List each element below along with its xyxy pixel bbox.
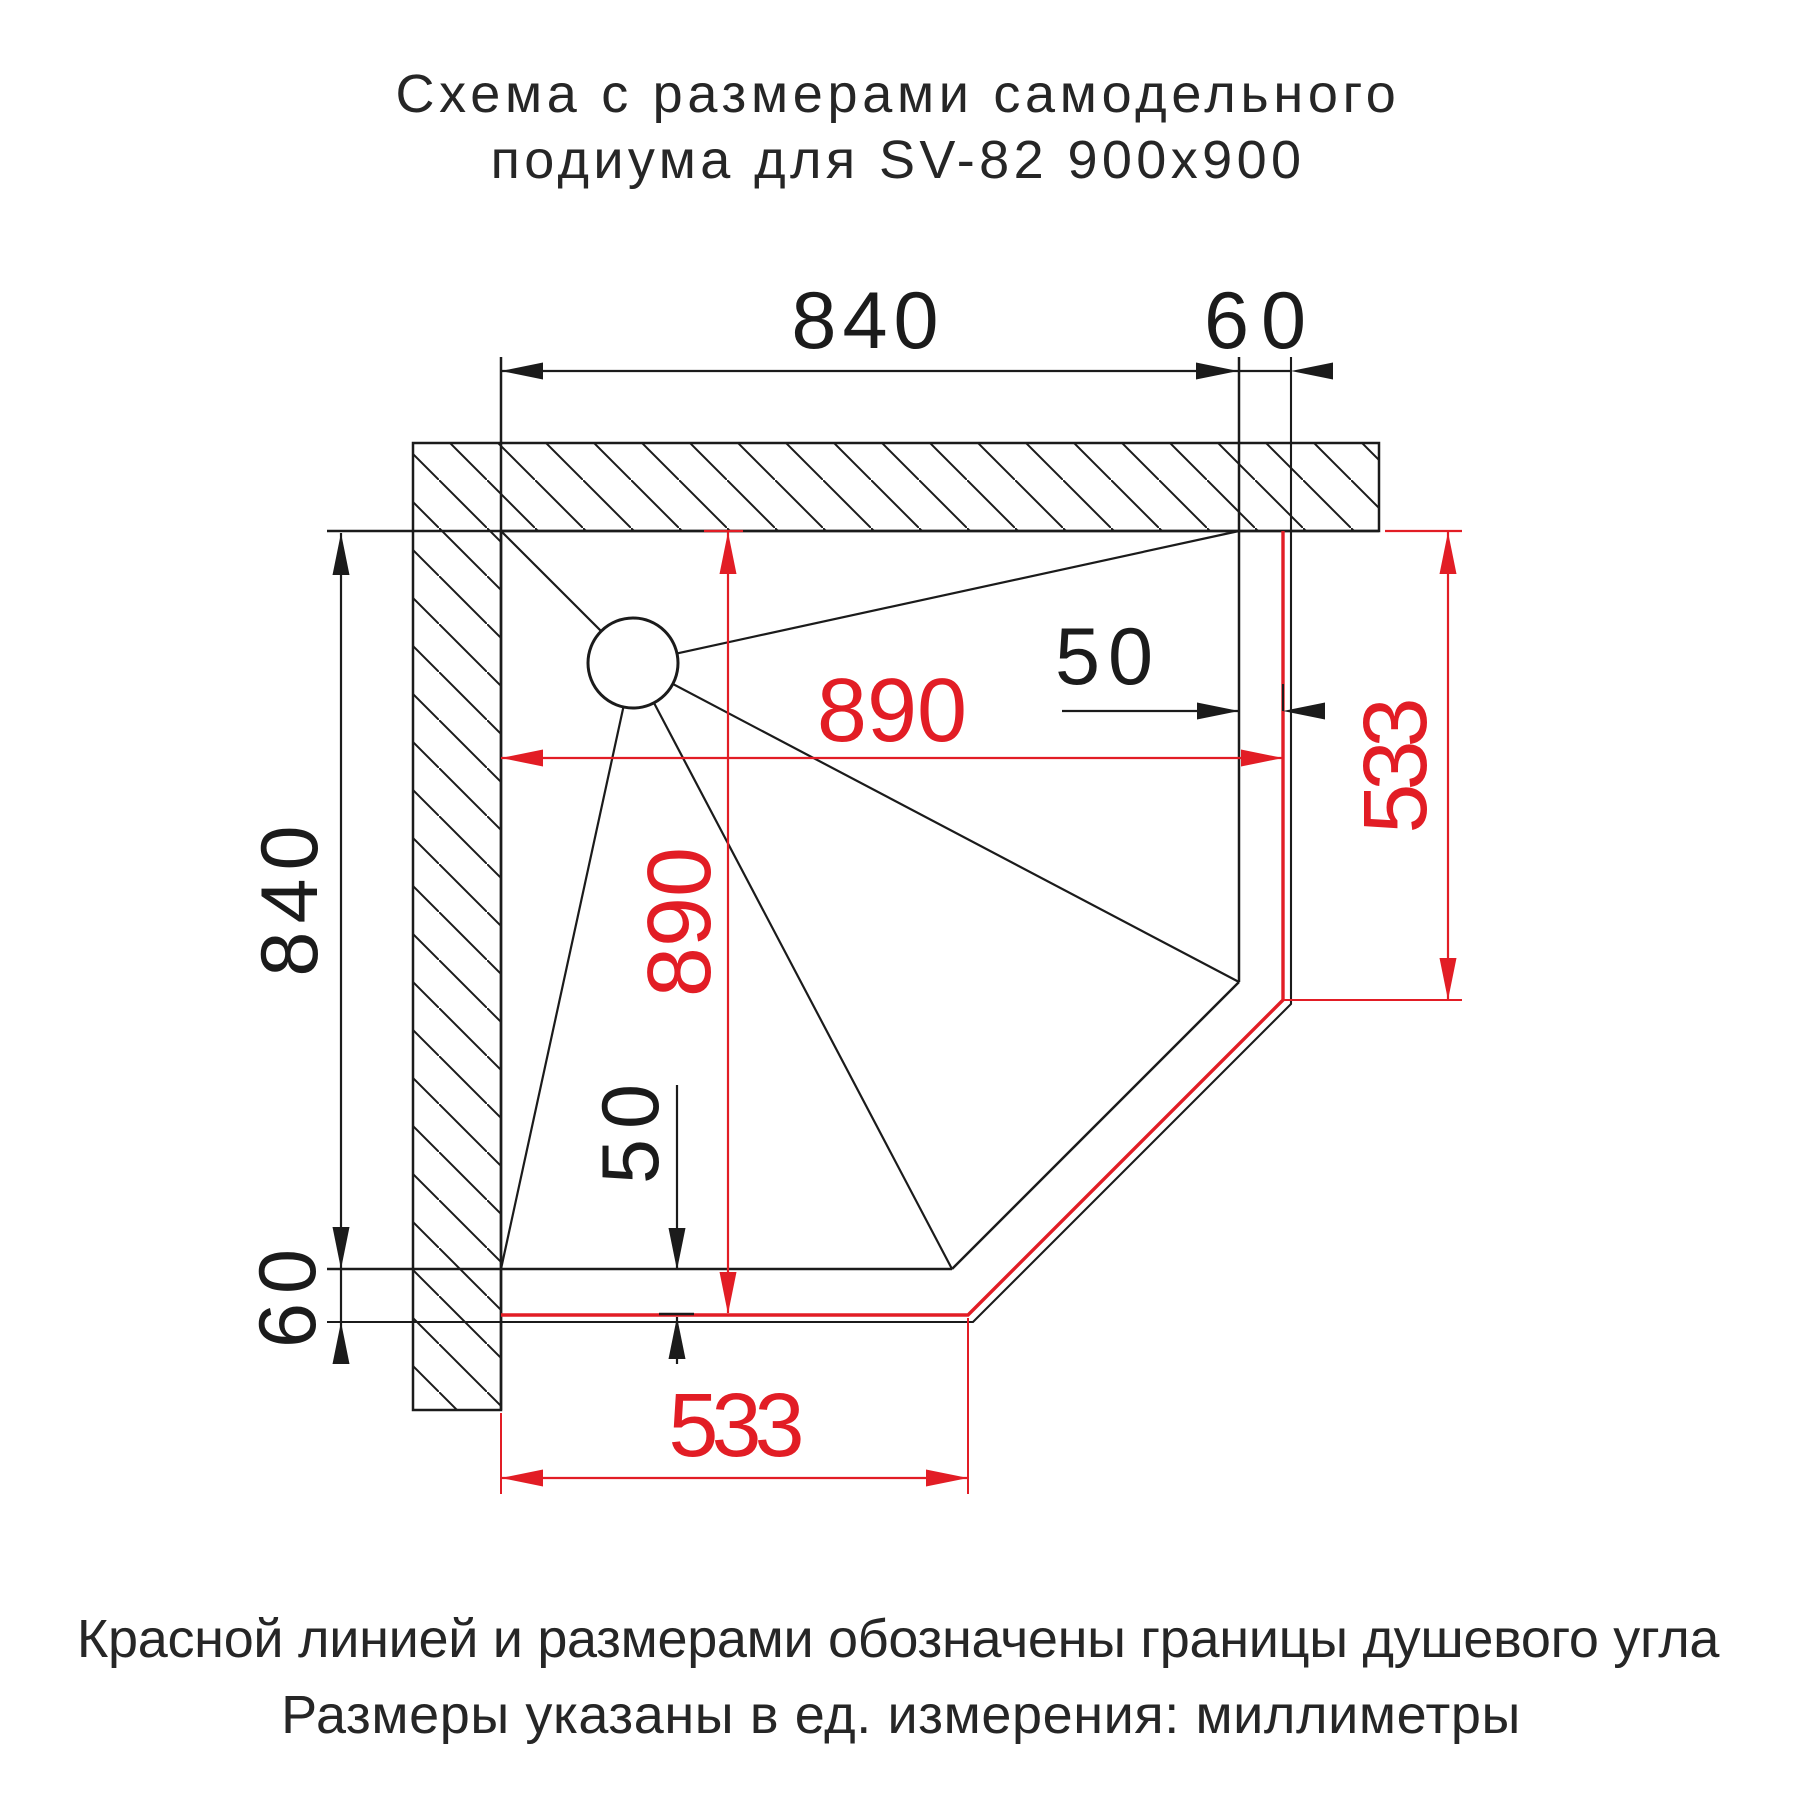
svg-text:60: 60	[243, 1240, 333, 1348]
svg-text:840: 840	[245, 817, 335, 976]
svg-text:890: 890	[817, 661, 967, 761]
svg-text:Схема с размерами самодельного: Схема с размерами самодельного	[395, 64, 1400, 124]
svg-text:890: 890	[630, 847, 730, 997]
svg-text:50: 50	[586, 1074, 676, 1184]
svg-text:50: 50	[1055, 612, 1161, 702]
svg-text:60: 60	[1204, 276, 1318, 366]
svg-text:Красной линией и размерами обо: Красной линией и размерами обозначены гр…	[77, 1609, 1721, 1669]
svg-text:533: 533	[668, 1376, 801, 1476]
svg-text:533: 533	[1346, 700, 1446, 833]
svg-text:Размеры указаны в ед. измерени: Размеры указаны в ед. измерения: миллиме…	[281, 1685, 1521, 1745]
svg-text:подиума для SV-82 900x900: подиума для SV-82 900x900	[491, 130, 1306, 190]
svg-text:840: 840	[791, 276, 944, 366]
